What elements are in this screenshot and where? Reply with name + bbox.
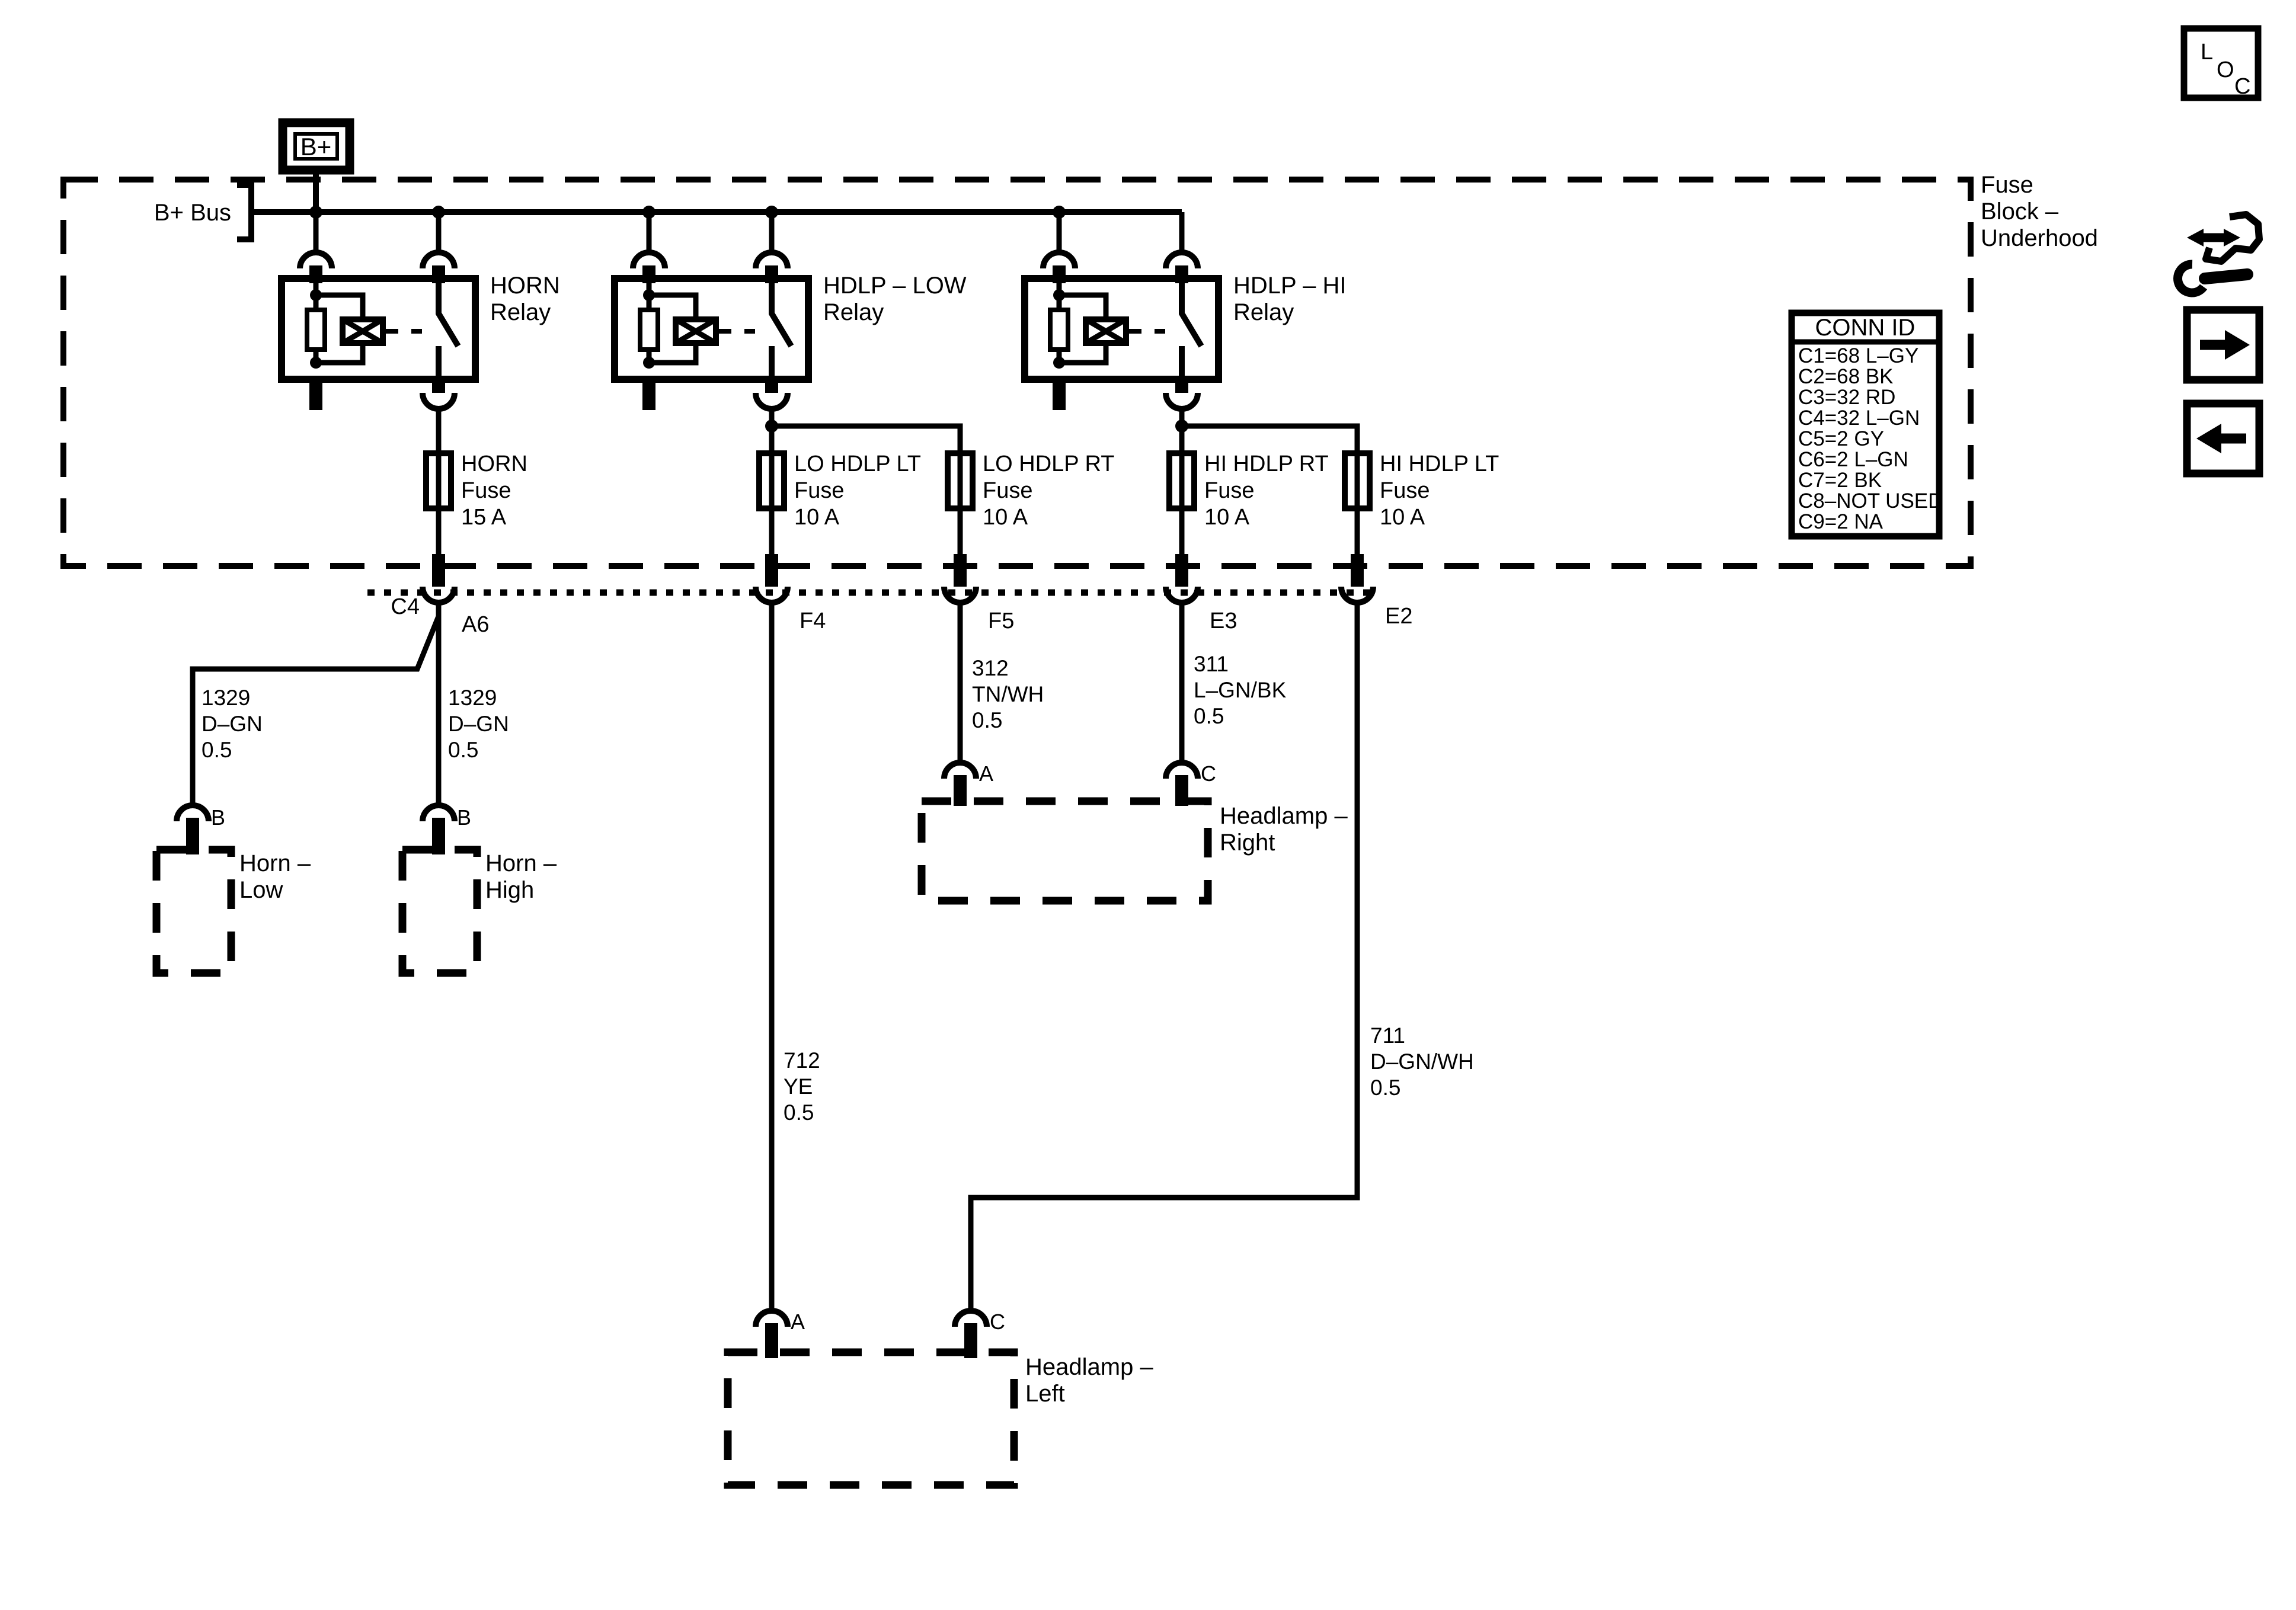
- hdlp-hi-relay: HDLP – HI Relay: [1025, 273, 1346, 410]
- svg-text:YE: YE: [784, 1074, 813, 1099]
- left-arrow-icon: [2196, 424, 2221, 453]
- svg-text:HI HDLP LT: HI HDLP LT: [1380, 452, 1499, 476]
- connector-id-c4: C4: [391, 594, 420, 619]
- bus-taps: [316, 212, 1182, 252]
- connector-id-e2: E2: [1385, 604, 1412, 629]
- headlamp-right-label: Headlamp –: [1220, 803, 1348, 829]
- pin-c-label: C: [990, 1310, 1005, 1334]
- svg-text:10 A: 10 A: [794, 505, 840, 530]
- svg-text:C2=68 BK: C2=68 BK: [1798, 365, 1894, 388]
- svg-text:312: 312: [972, 656, 1009, 680]
- connector-id-f5: F5: [988, 609, 1014, 633]
- bplus-bus-label: B+ Bus: [154, 200, 231, 226]
- svg-text:0.5: 0.5: [448, 738, 478, 762]
- svg-text:0.5: 0.5: [202, 738, 232, 762]
- svg-text:711: 711: [1370, 1023, 1405, 1048]
- svg-text:HORN: HORN: [461, 452, 527, 476]
- lo-hdlp-lt-fuse: LO HDLP LT Fuse 10 A: [759, 452, 921, 530]
- svg-text:1329: 1329: [202, 686, 250, 710]
- connector-id-f4: F4: [800, 609, 826, 633]
- svg-text:D–GN: D–GN: [202, 712, 263, 736]
- relay-switch: [772, 279, 791, 379]
- svg-text:0.5: 0.5: [784, 1100, 814, 1125]
- wrench-arrow-icon[interactable]: [2178, 215, 2259, 293]
- svg-text:0.5: 0.5: [1370, 1076, 1400, 1100]
- svg-text:O: O: [2217, 57, 2234, 82]
- svg-text:712: 712: [784, 1048, 820, 1073]
- svg-text:C7=2 BK: C7=2 BK: [1798, 469, 1882, 492]
- conn-id-table: CONN ID C1=68 L–GY C2=68 BK C3=32 RD C4=…: [1792, 313, 1943, 536]
- svg-text:Fuse: Fuse: [1204, 478, 1254, 503]
- bplus-bus: B+ Bus: [154, 185, 1182, 252]
- svg-text:LO HDLP RT: LO HDLP RT: [983, 452, 1114, 476]
- svg-text:311: 311: [1194, 652, 1229, 676]
- lo-hdlp-rt-fuse: LO HDLP RT Fuse 10 A: [948, 452, 1114, 530]
- svg-text:C1=68 L–GY: C1=68 L–GY: [1798, 344, 1918, 367]
- svg-text:15 A: 15 A: [461, 505, 507, 530]
- svg-text:C5=2 GY: C5=2 GY: [1798, 427, 1884, 450]
- svg-text:Relay: Relay: [490, 299, 551, 325]
- svg-text:Relay: Relay: [823, 299, 884, 325]
- svg-text:1329: 1329: [448, 686, 497, 710]
- wire-1329-left: [193, 616, 439, 805]
- svg-text:L: L: [2201, 40, 2213, 65]
- svg-text:Block –: Block –: [1981, 199, 2059, 225]
- svg-text:10 A: 10 A: [1380, 505, 1425, 530]
- hi-hdlp-rt-fuse: HI HDLP RT Fuse 10 A: [1169, 452, 1329, 530]
- hi-hdlp-lt-fuse: HI HDLP LT Fuse 10 A: [1345, 452, 1499, 530]
- horn-fuse: HORN Fuse 15 A: [426, 452, 527, 530]
- svg-text:C9=2 NA: C9=2 NA: [1798, 510, 1884, 533]
- resistor: [640, 310, 658, 350]
- bplus-terminal: B+: [283, 123, 350, 212]
- headlamp-left: A C Headlamp – Left: [728, 1310, 1153, 1485]
- hdlp-low-relay: HDLP – LOW Relay: [615, 273, 967, 410]
- svg-text:C: C: [2234, 74, 2250, 99]
- horn-relay: HORN Relay: [282, 273, 560, 410]
- connector-id-a6: A6: [462, 612, 489, 637]
- connector-id-e3: E3: [1210, 609, 1237, 633]
- fuse-block-label: Fuse: [1981, 172, 2033, 198]
- svg-text:C3=32 RD: C3=32 RD: [1798, 386, 1895, 409]
- relay-switch: [439, 279, 458, 379]
- hdlp-low-relay-label: HDLP – LOW: [823, 273, 967, 299]
- pin-a-label: A: [979, 761, 993, 786]
- loc-button[interactable]: L O C: [2184, 28, 2258, 99]
- pin-b-label: B: [457, 805, 471, 830]
- resistor: [307, 310, 325, 350]
- svg-text:Fuse: Fuse: [461, 478, 511, 503]
- svg-text:Fuse: Fuse: [794, 478, 844, 503]
- conn-id-title: CONN ID: [1815, 315, 1916, 341]
- svg-text:10 A: 10 A: [983, 505, 1028, 530]
- headlamp-right: A C Headlamp – Right: [922, 761, 1348, 901]
- svg-text:C4=32 L–GN: C4=32 L–GN: [1798, 406, 1920, 430]
- wiring-diagram: Fuse Block – Underhood B+ B+ Bus: [0, 0, 2296, 1610]
- svg-text:Low: Low: [239, 877, 283, 903]
- horn-high-label: Horn –: [485, 850, 557, 876]
- headlamp-left-label: Headlamp –: [1025, 1354, 1153, 1380]
- resistor: [1050, 310, 1068, 350]
- horn-low-label: Horn –: [239, 850, 311, 876]
- horn-relay-label: HORN: [490, 273, 560, 299]
- svg-text:LO HDLP LT: LO HDLP LT: [794, 452, 921, 476]
- pin-b-label: B: [211, 805, 225, 830]
- horn-low: B Horn – Low: [156, 805, 311, 973]
- hdlp-hi-relay-label: HDLP – HI: [1233, 273, 1346, 299]
- svg-text:TN/WH: TN/WH: [972, 682, 1044, 706]
- prev-page-button[interactable]: [2187, 404, 2259, 473]
- svg-text:Fuse: Fuse: [1380, 478, 1430, 503]
- next-page-button[interactable]: [2187, 310, 2259, 380]
- wire-711: [971, 603, 1357, 1310]
- svg-text:HI HDLP RT: HI HDLP RT: [1204, 452, 1329, 476]
- svg-text:0.5: 0.5: [972, 708, 1002, 732]
- right-arrow-icon: [2225, 330, 2250, 360]
- svg-text:Fuse: Fuse: [983, 478, 1032, 503]
- svg-text:Underhood: Underhood: [1981, 225, 2098, 251]
- svg-text:C6=2 L–GN: C6=2 L–GN: [1798, 448, 1908, 471]
- svg-text:High: High: [485, 877, 534, 903]
- horn-high: B Horn – High: [402, 805, 557, 973]
- relay-switch: [1182, 279, 1201, 379]
- left-headlamp-wires: 712 YE 0.5 711 D–GN/WH 0.5: [772, 603, 1474, 1310]
- pin-c-label: C: [1201, 761, 1216, 786]
- svg-text:10 A: 10 A: [1204, 505, 1250, 530]
- svg-text:L–GN/BK: L–GN/BK: [1194, 678, 1287, 702]
- svg-text:Relay: Relay: [1233, 299, 1294, 325]
- svg-text:0.5: 0.5: [1194, 704, 1224, 728]
- bus-bracket: [237, 185, 251, 239]
- svg-text:C8–NOT USED: C8–NOT USED: [1798, 489, 1943, 513]
- svg-text:Left: Left: [1025, 1381, 1065, 1407]
- bplus-label: B+: [300, 133, 332, 161]
- svg-text:D–GN/WH: D–GN/WH: [1370, 1049, 1474, 1074]
- pin-a-label: A: [791, 1310, 805, 1334]
- svg-text:Right: Right: [1220, 830, 1275, 856]
- svg-text:D–GN: D–GN: [448, 712, 509, 736]
